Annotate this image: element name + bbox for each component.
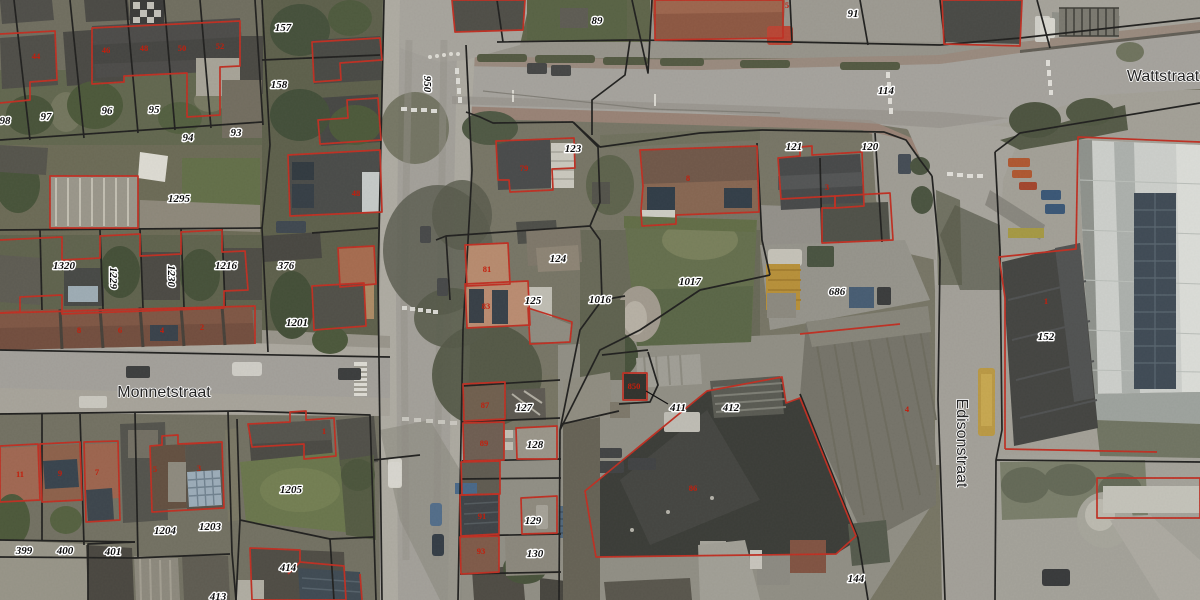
svg-text:89: 89 (592, 15, 604, 27)
svg-text:1205: 1205 (280, 484, 303, 496)
svg-text:8: 8 (77, 325, 81, 335)
svg-text:91: 91 (478, 511, 487, 521)
svg-text:125: 125 (525, 295, 542, 307)
svg-text:114: 114 (878, 85, 894, 97)
svg-text:128: 128 (527, 439, 544, 451)
svg-text:1204: 1204 (154, 525, 177, 537)
svg-text:1: 1 (322, 426, 326, 436)
svg-text:44: 44 (32, 51, 41, 61)
svg-text:3: 3 (197, 463, 201, 473)
svg-text:96: 96 (102, 105, 114, 117)
svg-text:950: 950 (421, 76, 433, 93)
svg-text:5: 5 (785, 0, 789, 10)
svg-text:686: 686 (829, 286, 846, 298)
svg-text:412: 412 (722, 402, 740, 414)
svg-text:399: 399 (15, 545, 33, 557)
svg-text:52: 52 (216, 41, 225, 51)
svg-text:2: 2 (200, 322, 204, 332)
svg-text:414: 414 (279, 562, 297, 574)
svg-text:48: 48 (352, 188, 361, 198)
svg-text:97: 97 (41, 111, 53, 123)
svg-text:79: 79 (520, 163, 529, 173)
svg-text:1295: 1295 (168, 193, 191, 205)
svg-text:1017: 1017 (679, 276, 702, 288)
svg-text:48: 48 (140, 43, 149, 53)
svg-text:120: 120 (862, 141, 879, 153)
svg-text:83: 83 (482, 301, 491, 311)
svg-text:81: 81 (483, 264, 492, 274)
svg-text:1229: 1229 (107, 267, 119, 290)
svg-text:5: 5 (153, 464, 157, 474)
svg-text:127: 127 (516, 402, 533, 414)
svg-text:376: 376 (277, 260, 295, 272)
svg-text:1203: 1203 (199, 521, 222, 533)
svg-text:152: 152 (1038, 331, 1055, 343)
svg-text:Edisonstraat: Edisonstraat (953, 399, 970, 488)
svg-text:Wattstraat: Wattstraat (1127, 68, 1200, 85)
svg-text:6: 6 (118, 325, 122, 335)
svg-text:94: 94 (183, 132, 195, 144)
svg-text:411: 411 (669, 402, 686, 414)
svg-text:158: 158 (271, 79, 288, 91)
svg-text:850: 850 (628, 381, 641, 391)
svg-text:1216: 1216 (215, 260, 238, 272)
svg-text:8: 8 (686, 173, 690, 183)
svg-text:1320: 1320 (53, 260, 76, 272)
svg-text:3: 3 (825, 182, 829, 192)
svg-text:401: 401 (104, 546, 122, 558)
svg-text:130: 130 (527, 548, 544, 560)
svg-text:129: 129 (525, 515, 542, 527)
svg-text:46: 46 (102, 45, 111, 55)
svg-text:413: 413 (209, 591, 227, 600)
svg-text:123: 123 (565, 143, 582, 155)
svg-text:91: 91 (848, 8, 859, 20)
svg-text:1016: 1016 (589, 294, 612, 306)
svg-text:86: 86 (689, 483, 698, 493)
svg-text:98: 98 (0, 115, 11, 127)
svg-text:Monnetstraat: Monnetstraat (117, 384, 211, 401)
svg-text:95: 95 (149, 104, 161, 116)
svg-text:93: 93 (231, 127, 243, 139)
svg-text:157: 157 (275, 22, 292, 34)
svg-text:87: 87 (481, 400, 490, 410)
svg-text:1230: 1230 (165, 265, 177, 288)
svg-text:93: 93 (477, 546, 486, 556)
svg-text:121: 121 (786, 141, 803, 153)
svg-text:9: 9 (58, 468, 62, 478)
svg-text:1: 1 (1044, 296, 1048, 306)
svg-text:400: 400 (56, 545, 74, 557)
svg-text:1201: 1201 (286, 317, 308, 329)
svg-text:144: 144 (848, 573, 865, 585)
svg-text:89: 89 (480, 438, 489, 448)
svg-text:11: 11 (16, 469, 24, 479)
svg-text:124: 124 (550, 253, 567, 265)
svg-text:50: 50 (178, 43, 187, 53)
